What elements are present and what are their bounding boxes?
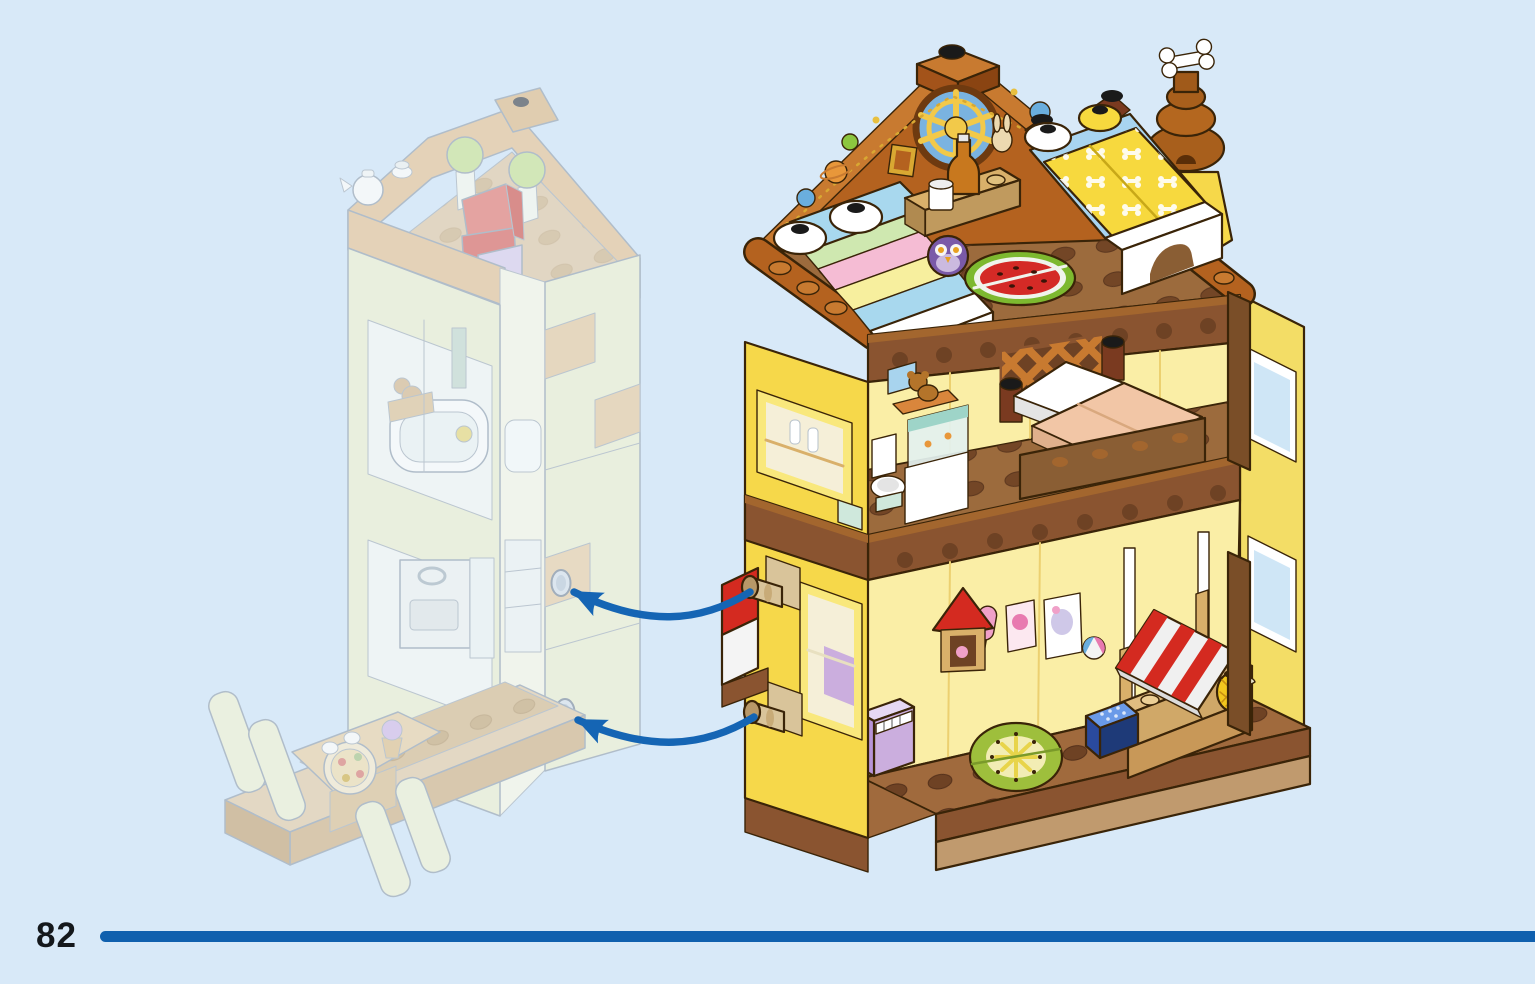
ghost-module xyxy=(205,88,640,900)
ghost-rubber-duck xyxy=(456,426,472,442)
apex-stud xyxy=(939,45,965,59)
main-house xyxy=(722,38,1310,872)
ghost-tub-edge xyxy=(505,420,541,472)
ghost-fridge xyxy=(505,540,541,652)
gable-picture-frame xyxy=(888,144,917,176)
page-footer: 82 xyxy=(0,908,1535,968)
left-wall xyxy=(722,342,868,838)
aquarium xyxy=(905,405,968,524)
ghost-cupcake xyxy=(382,720,402,758)
ghost-dining-booth xyxy=(205,682,585,900)
ghost-cabinet xyxy=(470,558,494,658)
ground-window xyxy=(800,582,862,740)
footer-rule xyxy=(100,931,1535,942)
ghost-stove xyxy=(400,560,470,648)
instruction-illustration xyxy=(0,0,1535,984)
kiwi-rug xyxy=(970,723,1062,791)
ghost-growth-chart xyxy=(452,328,466,388)
ghost-right-wall xyxy=(545,255,640,771)
milk-cup xyxy=(929,179,953,210)
watermelon-rug xyxy=(965,251,1075,305)
ghost-apex-stud xyxy=(513,97,529,107)
beach-ball xyxy=(1083,637,1105,659)
owl-ornament xyxy=(928,236,968,276)
page-number: 82 xyxy=(36,916,77,956)
